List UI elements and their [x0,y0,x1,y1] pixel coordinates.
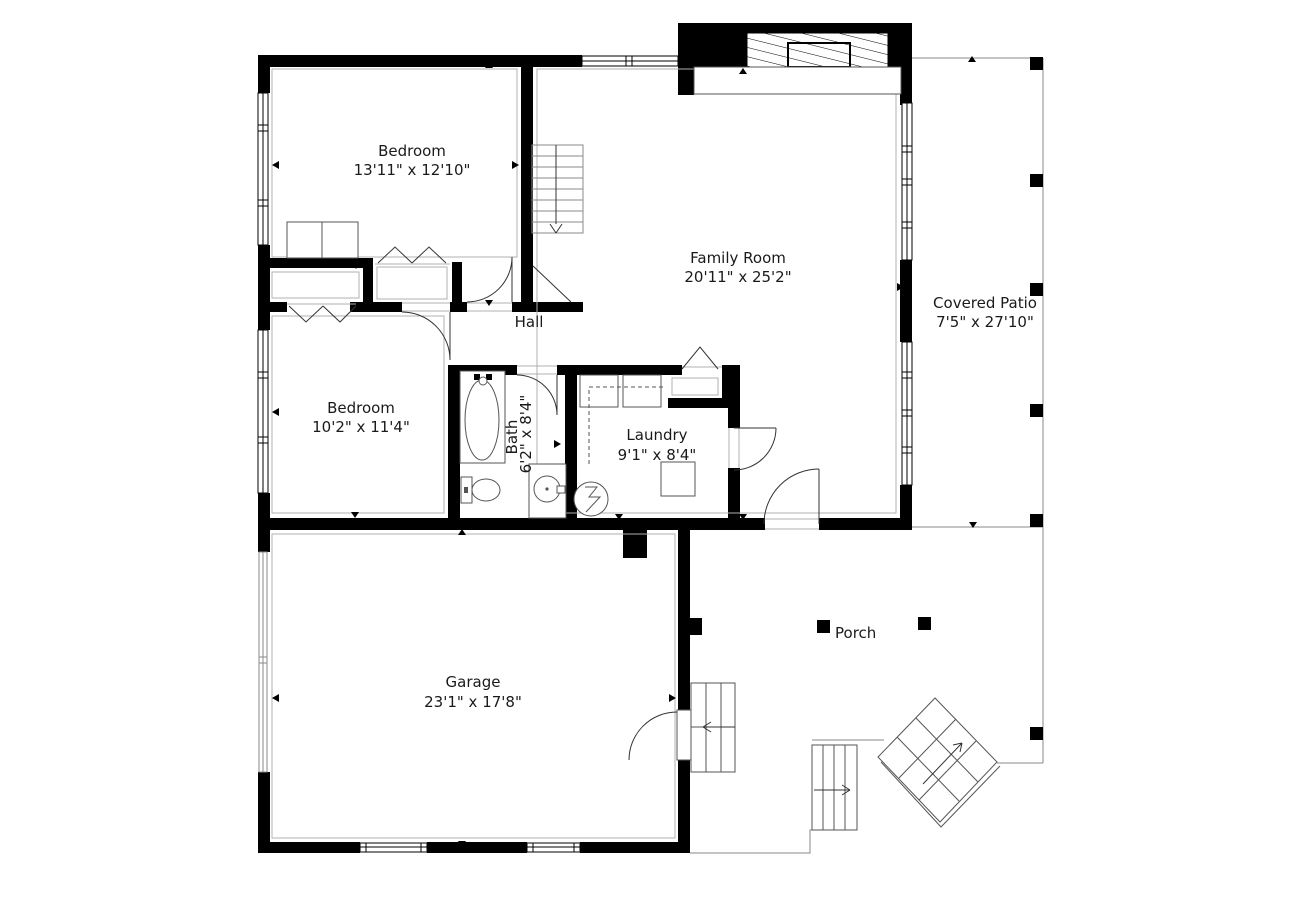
entry-arrow-left [703,722,735,732]
dresser-bedroom1 [287,222,358,258]
floor-plan-page: Bedroom 13'11" x 12'10" Family Room 20'1… [0,0,1303,914]
covered-patio-structure [912,57,1043,763]
room-dims-bath: 6'2" x 8'4" [517,395,535,474]
washer [580,375,618,407]
window-bedroom2-left [258,330,268,493]
room-dims-patio: 7'5" x 27'10" [936,313,1034,331]
room-interior-outlines [272,69,896,838]
dryer [623,375,661,407]
bathtub [460,371,505,463]
toilet [461,477,500,503]
water-heater [574,482,608,516]
window-family-top [582,56,678,66]
door-family-porch [764,469,819,529]
room-dims-garage: 23'1" x 17'8" [424,693,522,711]
porch-stairs-straight [812,745,857,830]
freezer [661,462,695,496]
room-label-patio: Covered Patio [933,294,1037,312]
entry-steps-garage [691,683,735,772]
room-label-porch: Porch [835,624,876,642]
room-dims-bedroom2: 10'2" x 11'4" [312,418,410,436]
walls [258,23,912,853]
door-laundry [729,428,776,470]
room-label-garage: Garage [446,673,501,691]
porch-structure [690,617,1043,853]
room-dims-family: 20'11" x 25'2" [684,268,791,286]
patio-posts [1030,57,1043,527]
window-family-right-upper [902,103,912,260]
room-label-hall: Hall [515,313,544,331]
room-label-laundry: Laundry [626,426,687,444]
stair-arrow-right [814,785,850,795]
door-bedroom2 [402,303,450,360]
room-label-family: Family Room [690,249,786,267]
window-garage-left [259,552,267,772]
staircase-main [532,145,583,302]
porch-stairs-diagonal [878,698,1000,827]
bifold-closet-laundry [682,347,722,369]
bifold-closet-bedroom1 [375,247,450,264]
hearth [694,67,901,94]
window-family-right-lower [902,342,912,485]
room-dims-laundry: 9'1" x 8'4" [618,446,697,464]
window-garage-bottom-right [527,843,580,852]
floor-plan: Bedroom 13'11" x 12'10" Family Room 20'1… [0,0,1303,914]
door-garage-porch [629,710,691,760]
window-bedroom1-left [258,93,268,245]
under-stair-line [533,266,571,302]
room-label-bedroom2: Bedroom [327,399,395,417]
room-label-bedroom1: Bedroom [378,142,446,160]
furniture [287,222,358,258]
room-dims-bedroom1: 13'11" x 12'10" [354,161,471,179]
bifold-closet-bedroom2 [287,304,356,322]
window-garage-bottom-left [360,843,427,852]
